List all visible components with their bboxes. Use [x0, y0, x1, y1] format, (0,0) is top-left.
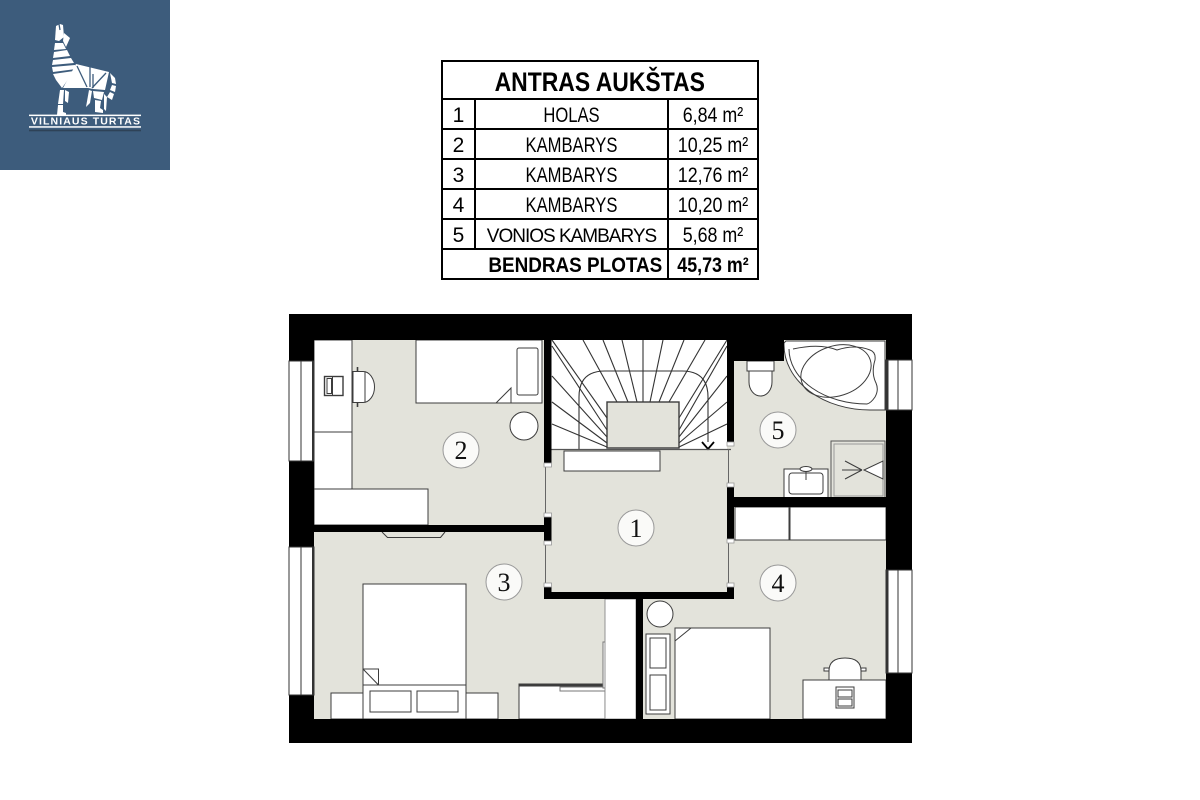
- svg-text:4: 4: [772, 569, 785, 598]
- svg-text:3: 3: [498, 568, 511, 597]
- svg-text:2: 2: [455, 436, 468, 465]
- svg-text:1: 1: [630, 514, 643, 543]
- svg-text:5: 5: [772, 416, 785, 445]
